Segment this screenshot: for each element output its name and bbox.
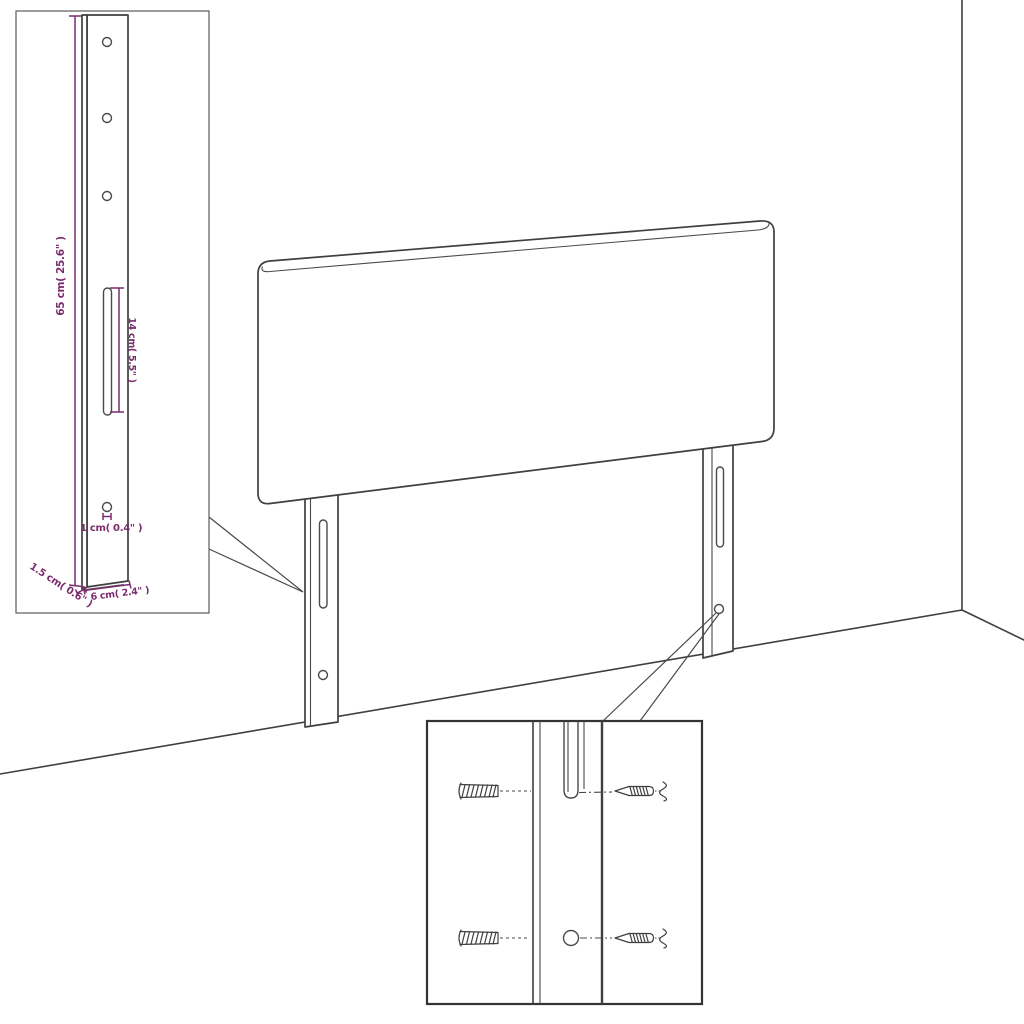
bracket-hole-3 bbox=[103, 192, 112, 201]
left-leg-slot bbox=[320, 520, 328, 608]
bracket-hole-bottom bbox=[103, 503, 112, 512]
headboard-assembly-diagram: 65 cm( 25.6" ) 14 cm( 5.5" ) 1 cm( 0.4" … bbox=[0, 0, 1024, 1024]
headboard-panel bbox=[258, 221, 774, 504]
inset-callout-line-upper bbox=[209, 517, 303, 592]
detail-hole bbox=[564, 931, 579, 946]
right-leg-slot bbox=[717, 467, 724, 547]
dimension-height-label: 65 cm( 25.6" ) bbox=[55, 236, 67, 316]
inset-callout-line-lower bbox=[209, 549, 303, 592]
right-leg-hole bbox=[715, 605, 724, 614]
mounting-detail-inset bbox=[427, 721, 702, 1004]
dimension-slot-label: 14 cm( 5.5" ) bbox=[126, 317, 137, 382]
bracket-hole-2 bbox=[103, 114, 112, 123]
dimension-inset: 65 cm( 25.6" ) 14 cm( 5.5" ) 1 cm( 0.4" … bbox=[16, 11, 209, 613]
floor-line-right bbox=[962, 610, 1024, 640]
callout-lines bbox=[209, 517, 719, 721]
diagram-svg: 65 cm( 25.6" ) 14 cm( 5.5" ) 1 cm( 0.4" … bbox=[0, 0, 1024, 1024]
left-leg-hole bbox=[319, 671, 328, 680]
bracket-slot bbox=[104, 288, 112, 415]
bracket-hole-1 bbox=[103, 38, 112, 47]
detail-callout-line-right bbox=[640, 614, 719, 721]
dimension-hole-label: 1 cm( 0.4" ) bbox=[80, 523, 142, 534]
detail-callout-line-left bbox=[603, 613, 716, 721]
bracket-side-face bbox=[82, 15, 87, 590]
headboard-panel-outline bbox=[258, 221, 774, 504]
